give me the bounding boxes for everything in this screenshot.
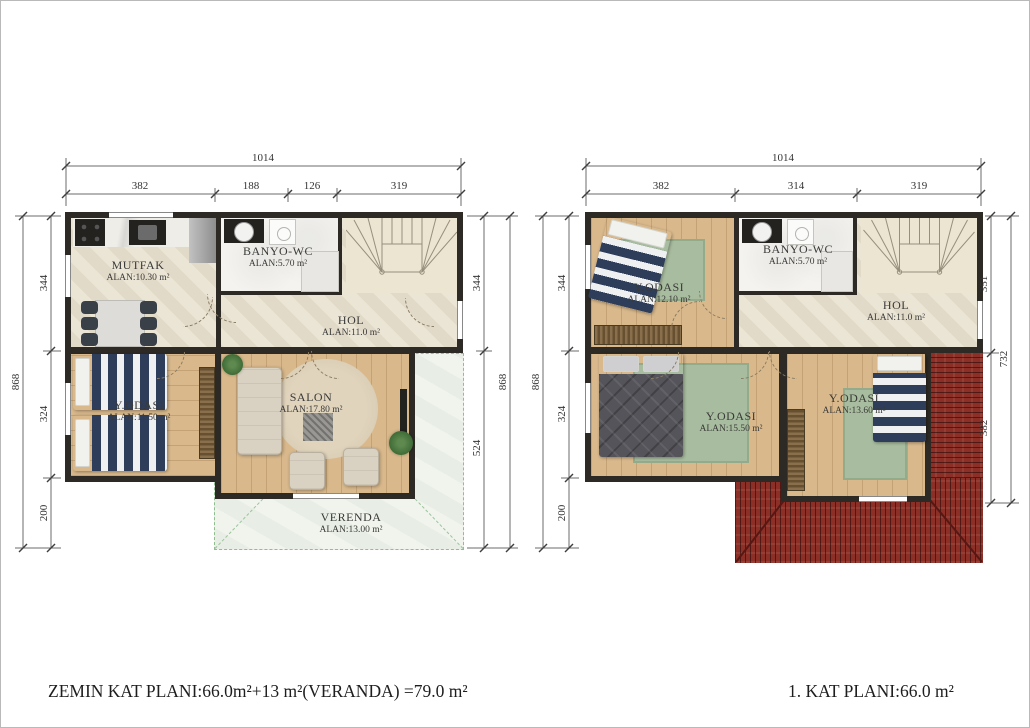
room-label-yodasi-1: Y.ODASIALAN:12.10 m² [627,281,690,306]
dim-top-seg: 382 [653,180,670,192]
dim-left-seg: 344 [38,275,50,292]
dim-top-total-left: 1014 [252,152,274,164]
dim-right-seg: 351 [978,276,990,293]
room-label-hol-2: HOLALAN:11.0 m² [867,299,925,324]
dim-top-total-right: 1014 [772,152,794,164]
room-label-banyo-2: BANYO-WCALAN:5.70 m² [763,243,833,268]
room-label-mutfak: MUTFAKALAN:10.30 m² [106,259,169,284]
dim-left-total: 868 [530,374,542,391]
dim-right-seg: 344 [471,275,483,292]
dim-left-seg: 324 [38,406,50,423]
dim-top-seg: 188 [243,180,260,192]
dim-left-total: 868 [10,374,22,391]
room-label-hol: HOLALAN:11.0 m² [322,314,380,339]
dim-left-seg: 324 [556,406,568,423]
plan-title-ground-floor: ZEMIN KAT PLANI:66.0m²+13 m²(VERANDA) =7… [48,681,468,702]
room-label-veranda: VERENDAALAN:13.00 m² [319,511,382,536]
floor-plan-sheet: 1014 382 188 126 319 868 344 324 200 344… [0,0,1030,728]
room-label-yodasi: Y.ODASIALAN:11.50 m² [108,399,171,424]
dim-top-seg: 319 [391,180,408,192]
dim-top-seg: 382 [132,180,149,192]
dim-left-seg: 200 [556,505,568,522]
dimension-lines [1,1,1030,728]
plan-title-first-floor: 1. KAT PLANI:66.0 m² [788,681,954,702]
dim-left-seg: 200 [38,505,50,522]
dim-right-total: 732 [998,351,1010,368]
room-label-salon: SALONALAN:17.80 m² [279,391,342,416]
room-label-banyo: BANYO-WCALAN:5.70 m² [243,245,313,270]
dim-top-seg: 126 [304,180,321,192]
dim-top-seg: 314 [788,180,805,192]
dim-top-seg: 319 [911,180,928,192]
room-label-yodasi-3: Y.ODASIALAN:13.60 m² [822,392,885,417]
dim-right-total: 868 [497,374,509,391]
dim-left-seg: 344 [556,275,568,292]
dim-right-seg: 382 [978,420,990,437]
room-label-yodasi-2: Y.ODASIALAN:15.50 m² [699,410,762,435]
dim-right-seg: 524 [471,440,483,457]
